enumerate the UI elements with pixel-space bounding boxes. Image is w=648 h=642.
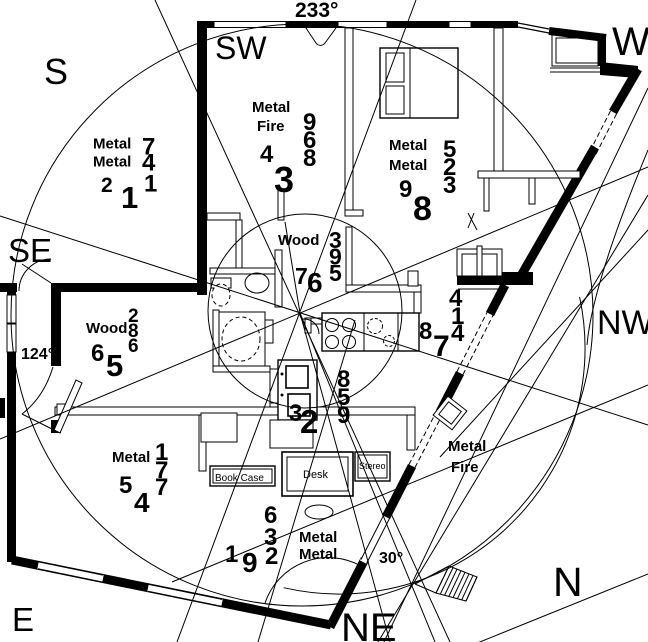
svg-text:4: 4	[451, 320, 465, 347]
svg-text:Metal: Metal	[389, 137, 427, 154]
svg-text:N: N	[553, 559, 583, 605]
svg-text:Fire: Fire	[257, 118, 285, 135]
svg-text:6: 6	[128, 336, 139, 357]
svg-text:Wood: Wood	[86, 320, 127, 337]
svg-text:Wood: Wood	[278, 232, 319, 249]
svg-text:30°: 30°	[379, 550, 403, 567]
svg-text:4: 4	[134, 487, 150, 518]
svg-text:124°: 124°	[21, 346, 54, 363]
svg-text:7: 7	[295, 263, 308, 289]
svg-text:9: 9	[399, 176, 412, 203]
svg-text:7: 7	[155, 474, 168, 501]
svg-text:8: 8	[413, 190, 432, 228]
svg-text:5: 5	[106, 348, 123, 383]
svg-text:8: 8	[303, 145, 316, 172]
svg-text:1: 1	[225, 541, 238, 568]
svg-text:NW: NW	[597, 304, 648, 342]
svg-text:Metal: Metal	[299, 546, 337, 563]
svg-text:5: 5	[119, 472, 132, 499]
svg-text:2: 2	[300, 403, 318, 440]
svg-text:Metal: Metal	[252, 99, 290, 116]
svg-text:4: 4	[260, 141, 274, 168]
svg-text:Metal: Metal	[93, 154, 131, 171]
svg-text:Metal: Metal	[448, 438, 486, 455]
svg-text:9: 9	[337, 402, 350, 429]
svg-text:233°: 233°	[295, 0, 338, 22]
svg-text:W: W	[612, 20, 648, 64]
svg-text:2: 2	[265, 543, 278, 570]
svg-text:1: 1	[144, 171, 157, 198]
svg-text:1: 1	[121, 180, 138, 215]
svg-text:Metal: Metal	[389, 157, 427, 174]
svg-text:Metal: Metal	[299, 529, 337, 546]
svg-text:8: 8	[419, 318, 432, 345]
svg-text:3: 3	[274, 159, 294, 200]
svg-text:5: 5	[329, 260, 342, 286]
svg-text:6: 6	[91, 340, 104, 367]
svg-text:Metal: Metal	[93, 136, 131, 153]
svg-text:S: S	[44, 51, 68, 92]
svg-text:2: 2	[101, 174, 113, 197]
svg-text:SE: SE	[8, 232, 52, 269]
svg-text:Metal: Metal	[112, 449, 150, 466]
svg-text:E: E	[12, 601, 34, 638]
svg-text:3: 3	[443, 172, 456, 199]
